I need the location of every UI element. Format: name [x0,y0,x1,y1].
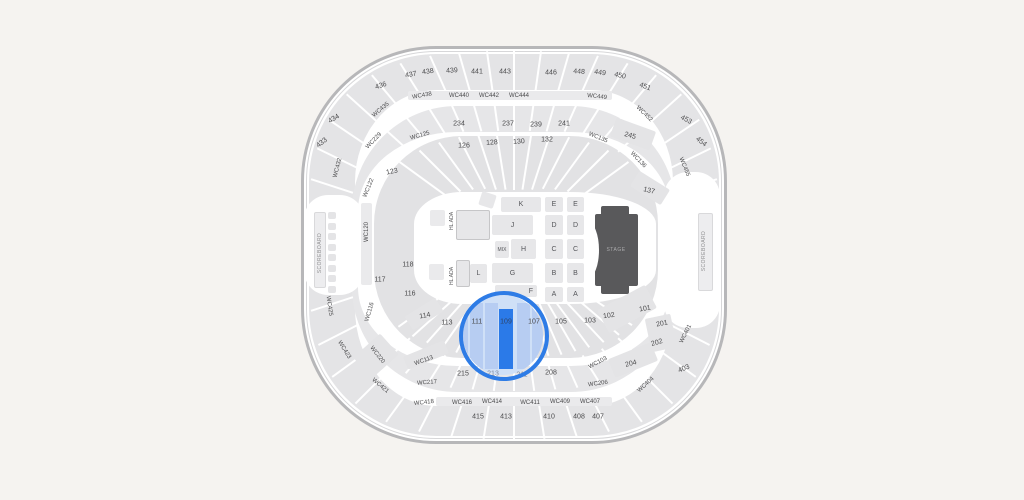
section-label-448[interactable]: 448 [573,68,585,76]
section-label-443[interactable]: 443 [499,69,511,76]
section-label-410[interactable]: 410 [543,414,555,421]
section-label-208[interactable]: 208 [545,370,557,377]
section-label-408[interactable]: 408 [573,414,585,421]
scoreboard-segment [328,286,336,293]
section-label-415[interactable]: 415 [472,414,484,421]
ada-square-lower [429,264,444,280]
section-label-441[interactable]: 441 [471,69,483,76]
scoreboard-segment [328,244,336,251]
wc-label-WC416[interactable]: WC416 [452,400,472,406]
wc-label-WC440[interactable]: WC440 [449,93,469,99]
scoreboard-segment [328,212,336,219]
stage-tab-top [601,206,629,216]
section-label-118[interactable]: 118 [402,262,413,269]
floor-E-1[interactable]: E [545,197,563,212]
section-label-130[interactable]: 130 [513,138,525,146]
ada-label-upper: HL.ADA [449,212,455,230]
ada-square-upper [430,210,445,226]
section-label-241[interactable]: 241 [558,121,570,128]
section-label-413[interactable]: 413 [500,414,512,421]
scoreboard-segment [328,275,336,282]
floor-A-1[interactable]: A [545,287,563,302]
section-label-446[interactable]: 446 [545,70,557,77]
floor-J[interactable]: J [492,215,533,235]
scoreboard-segment [328,223,336,230]
floor-L[interactable]: L [470,264,487,283]
section-label-215[interactable]: 215 [457,371,469,378]
wc-label-WC414[interactable]: WC414 [482,399,502,405]
floor-G[interactable]: G [492,263,533,283]
section-label-126[interactable]: 126 [458,143,470,150]
floor-C-1[interactable]: C [545,239,563,259]
scoreboard-segment [328,233,336,240]
seating-map: KJMIXHLGFEEDDCCBBAA 43743843944144344644… [0,0,1024,500]
wc-label-WC407[interactable]: WC407 [580,399,600,405]
scoreboard-segment [328,265,336,272]
stage-label: STAGE [606,247,625,253]
wc-label-WC409[interactable]: WC409 [550,399,570,405]
scoreboard-label-left: SCOREBOARD [317,233,323,274]
wc120-strip [361,203,372,285]
scoreboard-label-right: SCOREBOARD [701,231,707,272]
section-label-132[interactable]: 132 [541,137,553,144]
ada-box-lower [456,260,470,287]
floor-D-1[interactable]: D [545,215,563,235]
floor-H[interactable]: H [511,239,536,259]
scoreboard-segment [328,254,336,261]
highlight-circle[interactable] [459,291,549,381]
section-label-116[interactable]: 116 [404,291,415,298]
floor-MIX[interactable]: MIX [495,241,509,258]
section-label-237[interactable]: 237 [502,121,514,128]
wc-label-WC442[interactable]: WC442 [479,93,499,99]
section-label-117[interactable]: 117 [374,277,385,284]
floor-B-2[interactable]: B [567,263,584,283]
section-label-128[interactable]: 128 [486,139,498,147]
floor-C-2[interactable]: C [567,239,584,259]
section-label-113[interactable]: 113 [441,320,452,327]
wc-label-WC444[interactable]: WC444 [509,93,529,99]
floor-A-2[interactable]: A [567,287,584,302]
section-label-103[interactable]: 103 [584,318,596,325]
floor-E-2[interactable]: E [567,197,584,212]
wc-label-WC120[interactable]: WC120 [364,222,370,242]
ada-label-lower: HL.ADA [449,267,455,285]
section-label-105[interactable]: 105 [555,319,567,326]
section-label-407[interactable]: 407 [592,414,604,421]
ada-box-upper [456,210,490,240]
wc-label-WC411[interactable]: WC411 [520,400,540,406]
separator [513,51,515,95]
floor-B-1[interactable]: B [545,263,563,283]
floor-K[interactable]: K [501,197,541,212]
stage-tab-bottom [601,284,629,294]
section-label-439[interactable]: 439 [446,67,458,75]
section-label-239[interactable]: 239 [530,122,542,129]
floor-D-2[interactable]: D [567,215,584,235]
section-label-449[interactable]: 449 [594,69,607,78]
section-label-234[interactable]: 234 [453,121,465,128]
